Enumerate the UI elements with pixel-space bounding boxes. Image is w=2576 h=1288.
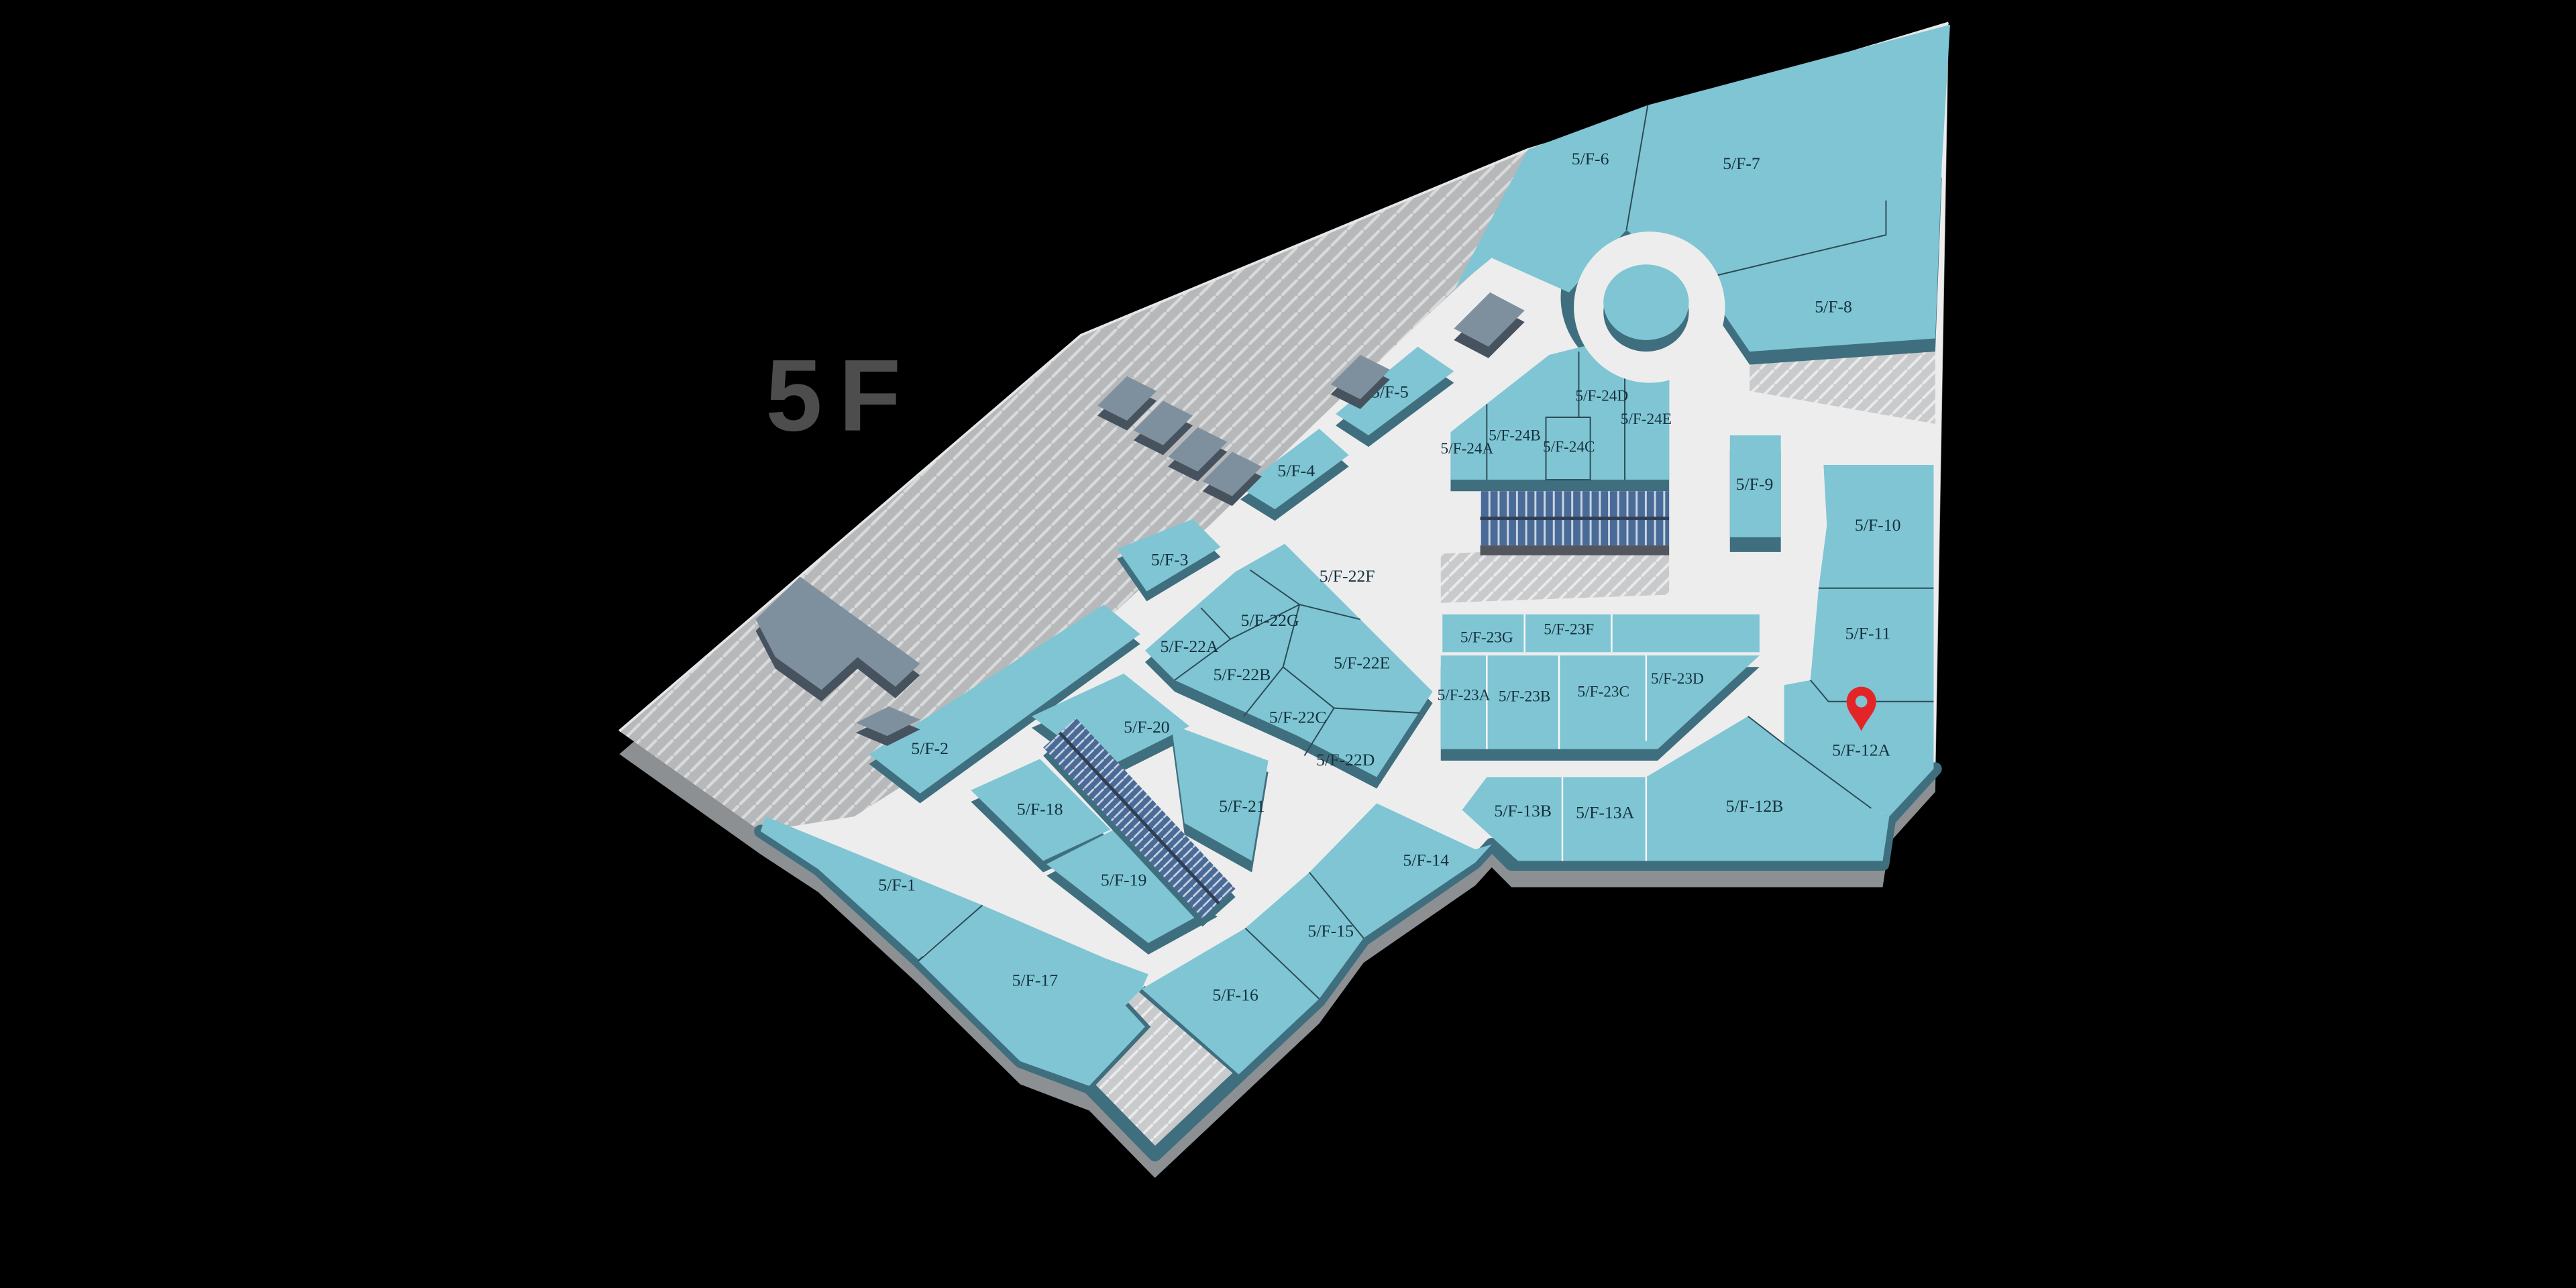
unit-label: 5/F-22A: [1160, 637, 1219, 656]
unit-label: 5/F-23B: [1499, 688, 1551, 706]
unit-label: 5/F-14: [1403, 851, 1449, 870]
unit-label: 5/F-23D: [1651, 670, 1704, 688]
unit-label: 5/F-22D: [1316, 750, 1375, 769]
unit-label: 5/F-19: [1101, 870, 1147, 890]
unit-label: 5/F-16: [1212, 985, 1258, 1004]
unit-label: 5/F-10: [1855, 515, 1901, 535]
unit-label: 5/F-24E: [1621, 411, 1672, 428]
unit-label: 5/F-18: [1017, 800, 1063, 819]
unit-label: 5/F-23C: [1577, 683, 1629, 700]
unit-label: 5/F-3: [1151, 549, 1189, 569]
unit-label: 5/F-23F: [1544, 621, 1594, 638]
unit-label: 5/F-2: [911, 739, 949, 758]
unit-label: 5/F-22E: [1334, 653, 1390, 673]
unit-label: 5/F-21: [1219, 796, 1265, 816]
loop-island: [1603, 264, 1688, 340]
unit-label: 5/F-6: [1572, 149, 1609, 168]
unit-label: 5/F-12A: [1832, 741, 1891, 760]
unit-label: 5/F-8: [1815, 297, 1852, 316]
unit-label: 5/F-20: [1124, 717, 1170, 737]
unit-label: 5/F-22C: [1269, 708, 1327, 727]
unit-label: 5/F-1: [878, 875, 916, 894]
unit-5F-10[interactable]: 5/F-10: [1819, 465, 1933, 588]
unit-label: 5/F-13A: [1576, 803, 1635, 822]
unit-label: 5/F-22G: [1240, 610, 1299, 630]
unit-label: 5/F-24B: [1489, 427, 1541, 444]
unit-label: 5/F-24D: [1575, 388, 1628, 405]
unit-5F-9[interactable]: 5/F-9: [1730, 435, 1781, 552]
unit-label: 5/F-17: [1012, 970, 1059, 989]
unit-label: 5/F-23A: [1438, 686, 1491, 704]
escalator-north[interactable]: [1481, 491, 1670, 555]
loop-walkway: [1574, 231, 1725, 382]
unit-label: 5/F-12B: [1726, 796, 1784, 816]
unit-label: 5/F-13B: [1494, 801, 1552, 820]
unit-label: 5/F-22F: [1320, 566, 1375, 586]
unit-label: 5/F-22B: [1214, 665, 1271, 684]
unit-label: 5/F-24A: [1441, 440, 1494, 458]
unit-label: 5/F-7: [1723, 154, 1760, 173]
unit-label: 5/F-11: [1845, 624, 1891, 643]
unit-5F-11[interactable]: 5/F-11: [1811, 588, 1934, 702]
unit-label: 5/F-24C: [1543, 438, 1595, 455]
floor-label: 5F: [765, 339, 917, 453]
unit-label: 5/F-23G: [1460, 629, 1513, 647]
unit-label: 5/F-15: [1307, 921, 1354, 941]
floor-map-canvas: 5/F-1 5/F-2 5/F-3 5/F-4 5/F-5 5/F-6 5/F-…: [0, 0, 2576, 1288]
unit-5F-13A[interactable]: 5/F-13A: [1562, 777, 1646, 861]
unit-label: 5/F-9: [1736, 474, 1774, 494]
unit-label: 5/F-4: [1277, 461, 1315, 480]
